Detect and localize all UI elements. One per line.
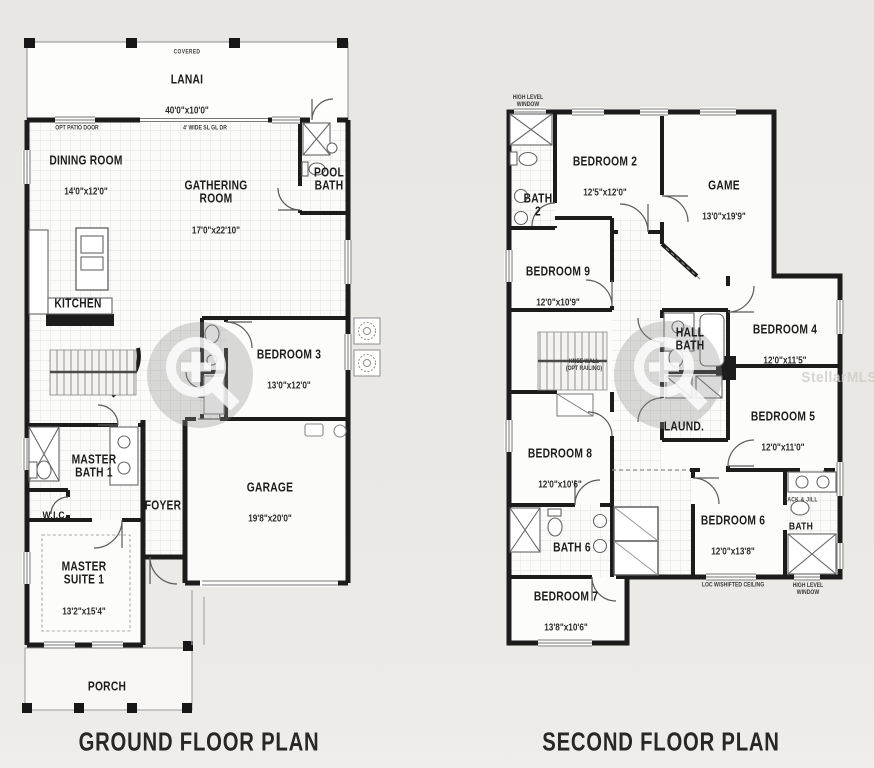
room-label-foyer: FOYER: [145, 481, 182, 512]
annotation-opt-patio-door: OPT PATIO DOOR: [55, 125, 98, 132]
floor-plan-sheet: COVERED LANAI 40'0"x10'0" DINING ROOM 14…: [0, 0, 874, 768]
room-label-jack-jill-bath: JACK & JILL BATH: [784, 479, 817, 532]
room-label-garage: GARAGE 19'8"x20'0": [247, 464, 293, 525]
room-label-bath2: BATH 2: [524, 174, 553, 219]
annotation-high-level-window: HIGH LEVEL WINDOW: [513, 95, 544, 109]
room-label-gathering: GATHERING ROOM 17'0"x22'10": [185, 162, 248, 237]
room-label-dining: DINING ROOM 14'0"x12'0": [49, 137, 122, 198]
label-overlay: COVERED LANAI 40'0"x10'0" DINING ROOM 14…: [0, 0, 874, 768]
annotation-sliding-glass-door: 4' WIDE SL GL DR: [183, 125, 227, 132]
room-label-bedroom2: BEDROOM 2 12'5"x12'0": [573, 138, 637, 199]
annotation-high-level-window-br: HIGH LEVEL WINDOW: [793, 583, 824, 597]
annotation-knee-wall: KNEE WALL (OPT RAILING): [566, 359, 602, 373]
room-label-master-bath: MASTER BATH 1: [72, 435, 117, 480]
room-label-bedroom9: BEDROOM 9 12'0"x10'9": [526, 248, 590, 309]
room-label-master-suite: MASTER SUITE 1 13'2"x15'4": [62, 543, 107, 618]
room-label-bedroom7: BEDROOM 7 13'8"x10'6": [534, 573, 598, 634]
second-floor-title: SECOND FLOOR PLAN: [542, 727, 779, 758]
room-label-bedroom6: BEDROOM 6 12'0"x13'8": [701, 497, 765, 558]
room-label-porch: PORCH: [88, 662, 126, 693]
room-label-wic: W.I.C.: [43, 492, 68, 521]
annotation-shifted-ceiling: LOC W/SHIFTED CEILING: [702, 582, 764, 589]
room-label-lanai: COVERED LANAI 40'0"x10'0": [165, 31, 209, 116]
room-label-bedroom4: BEDROOM 4 12'0"x11'5": [753, 306, 817, 367]
room-label-bedroom8: BEDROOM 8 12'0"x10'6": [528, 430, 592, 491]
room-label-hall-bath: HALL BATH: [676, 308, 705, 353]
mls-watermark: StellarMLS: [801, 369, 874, 386]
room-label-bedroom3: BEDROOM 3 13'0"x12'0": [257, 331, 321, 392]
room-label-laundry: LAUND.: [664, 402, 704, 433]
room-label-bath6: BATH 6: [553, 523, 591, 554]
room-label-kitchen: KITCHEN: [54, 279, 101, 310]
room-label-bedroom5: BEDROOM 5 12'0"x11'0": [751, 393, 815, 454]
room-label-game: GAME 13'0"x19'9": [702, 162, 746, 223]
ground-floor-title: GROUND FLOOR PLAN: [79, 727, 320, 758]
room-label-pool-bath: POOL BATH: [314, 148, 344, 193]
